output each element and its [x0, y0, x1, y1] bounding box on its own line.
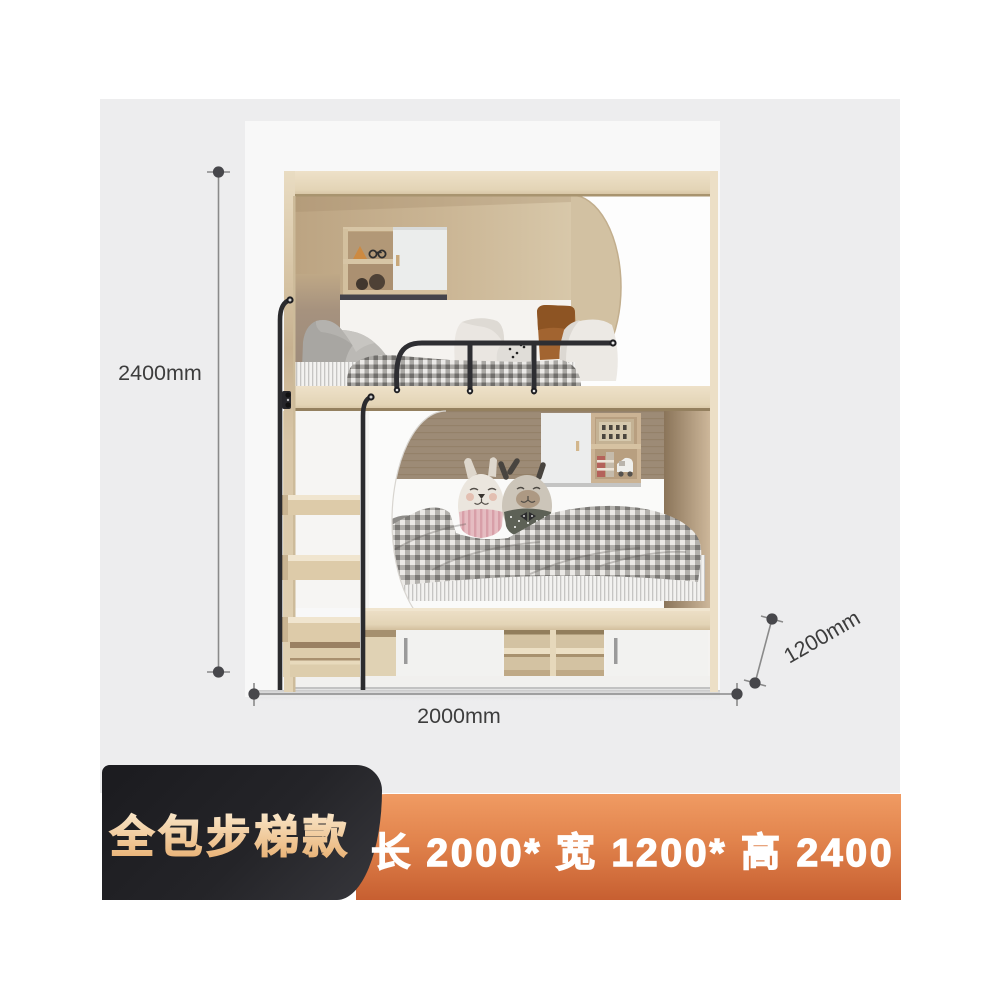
- svg-text:长 2000* 宽 1200* 高 2400: 长 2000* 宽 1200* 高 2400: [371, 831, 894, 875]
- svg-text:全包步梯款: 全包步梯款: [109, 812, 351, 862]
